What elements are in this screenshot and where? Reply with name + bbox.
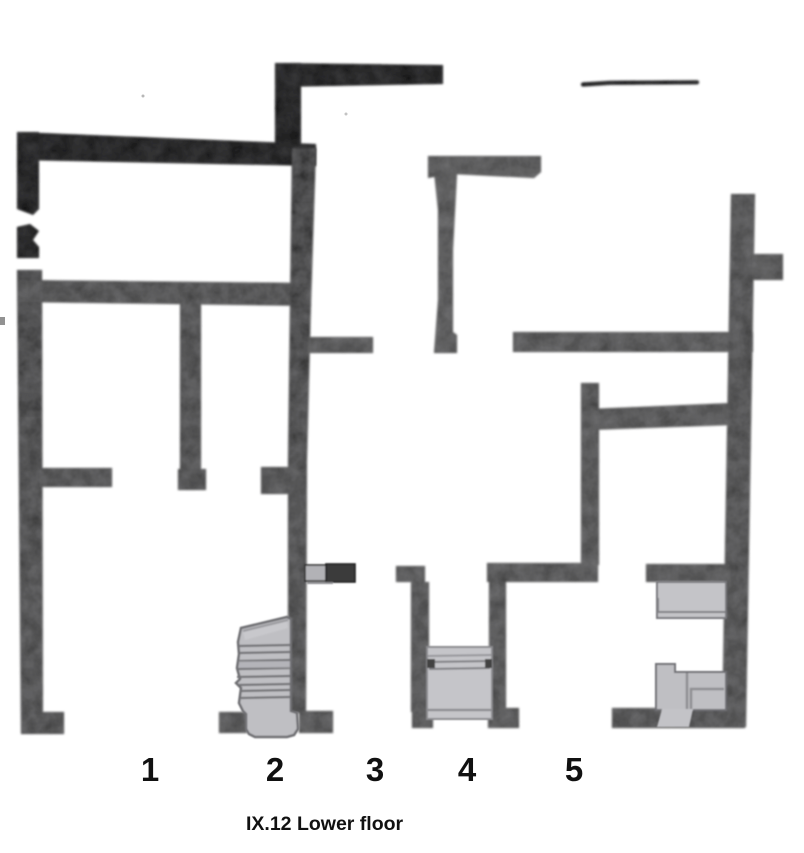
svg-text:5: 5 (565, 751, 583, 788)
svg-text:2: 2 (266, 751, 284, 788)
svg-text:3: 3 (366, 751, 384, 788)
svg-text:4: 4 (458, 751, 477, 788)
svg-text:1: 1 (141, 751, 159, 788)
svg-text:IX.12 Lower floor: IX.12 Lower floor (246, 813, 404, 835)
